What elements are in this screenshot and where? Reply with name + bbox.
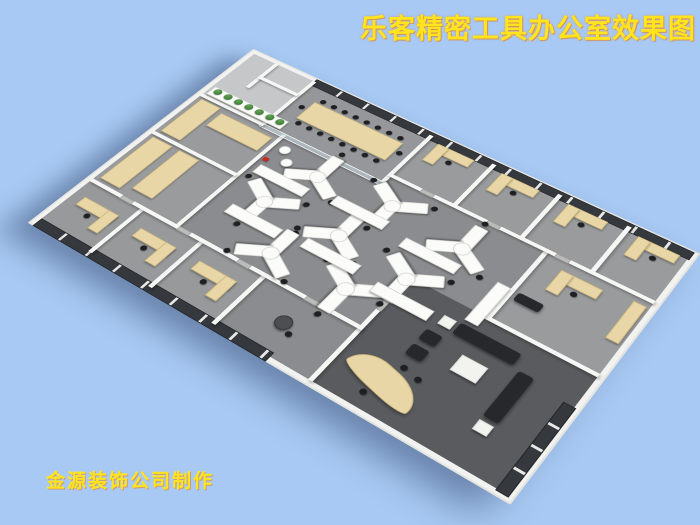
render-canvas: 乐客精密工具办公室效果图 金源装饰公司制作 bbox=[0, 0, 700, 525]
credit-text: 金源装饰公司制作 bbox=[46, 466, 214, 493]
office-floorplan bbox=[28, 49, 700, 505]
page-title: 乐客精密工具办公室效果图 bbox=[360, 7, 696, 46]
